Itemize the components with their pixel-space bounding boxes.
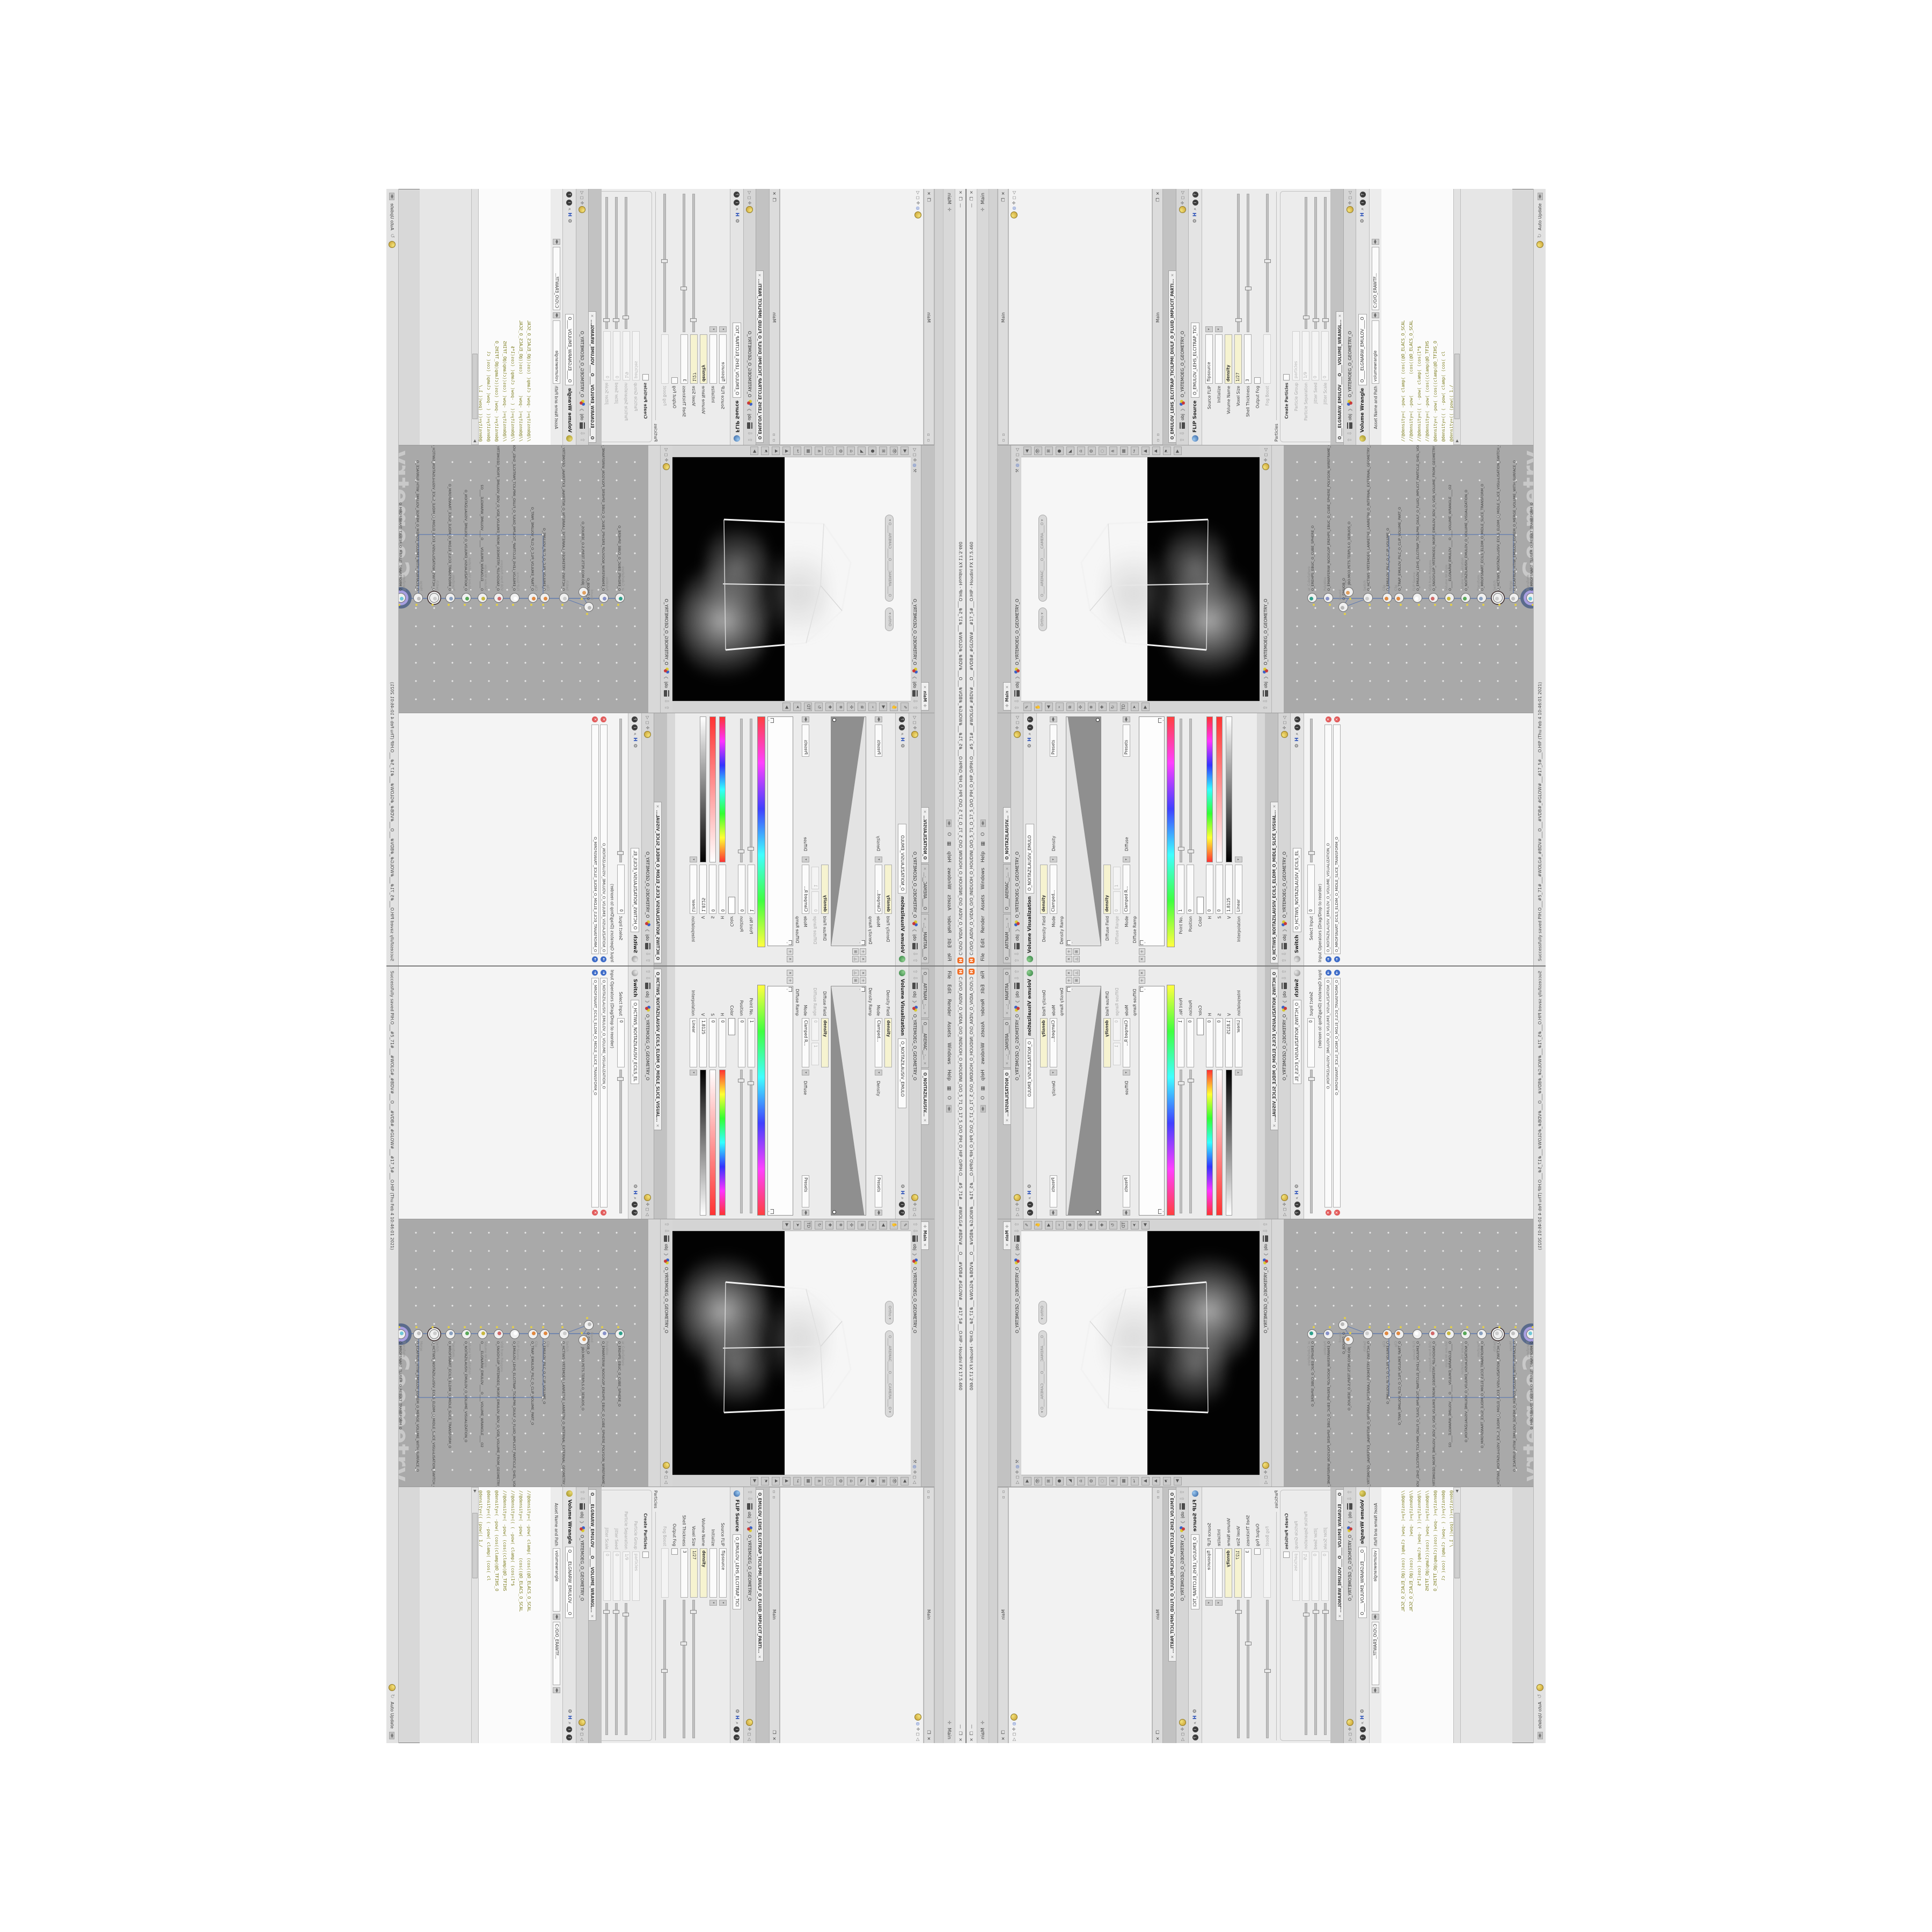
info-icon[interactable]: i	[1294, 724, 1300, 730]
pane-expand-icon[interactable]: ✛	[1180, 1728, 1185, 1731]
toolbar-icon[interactable]: ↻	[815, 1221, 823, 1230]
toolbar-icon[interactable]: ⚑	[1163, 447, 1171, 456]
anvil-icon[interactable]: ⚒	[913, 1459, 918, 1463]
pane-collapse-icon[interactable]: ◁	[916, 191, 920, 194]
minimize-button[interactable]: —	[958, 203, 963, 208]
context-label[interactable]: obj	[748, 1512, 752, 1518]
toolbar-icon[interactable]: ◌	[825, 447, 833, 456]
density-field-field[interactable]: density	[1040, 865, 1048, 914]
dock-icon[interactable]: ▫	[927, 1490, 932, 1493]
select-input-field[interactable]: 0	[617, 1018, 625, 1067]
position-slider[interactable]	[741, 719, 743, 862]
window-titlebar[interactable]: H C:/O/O_AIDIV_O_VIDIA_O/O_INIDUOH_O_HOU…	[967, 189, 977, 965]
tab-flip-source[interactable]: O_EMULOV_LEHS_ELCITRAP_TICILPMI_DIULF_O_…	[756, 1489, 764, 1662]
toolbar-icon[interactable]: ▶	[1141, 703, 1150, 712]
window-layout-icon[interactable]: ▦	[947, 841, 952, 846]
tab-camera[interactable]: O____AREMAC__:...✕	[1003, 1019, 1011, 1069]
toolbar-icon[interactable]: 👁	[890, 447, 898, 456]
toolbar-icon[interactable]: ⛰	[772, 1477, 780, 1485]
pin-icon[interactable]	[1014, 1194, 1021, 1201]
toolbar-icon[interactable]: ◀	[1045, 703, 1053, 712]
interpolation-menu-icon[interactable]: ▾	[690, 1070, 697, 1075]
pane-expand-icon[interactable]: ✛	[1012, 1728, 1016, 1731]
wrangle-node-name-field[interactable]: O____ELGNARW_EMULOV____O	[1358, 1547, 1367, 1618]
pane-collapse-icon[interactable]: ◁	[1180, 1738, 1185, 1741]
toolbar-icon[interactable]: ✚	[825, 1221, 833, 1230]
pin-icon[interactable]	[579, 207, 586, 214]
menu-assets[interactable]: Assets	[947, 895, 952, 910]
ramp-delete-point-button[interactable]: ✕	[1066, 956, 1072, 962]
ramp-delete-point-button[interactable]: ✕	[1139, 970, 1145, 976]
nav-down-icon[interactable]: ⇩	[1282, 952, 1287, 956]
tab-flip-source[interactable]: O_EMULOV_LEHS_ELCITRAP_TICILPMI_DIULF_O_…	[1168, 1489, 1176, 1662]
field-grip-icon[interactable]: ◀▶	[553, 1687, 560, 1693]
color-swatch[interactable]	[729, 897, 736, 914]
volume-name-field[interactable]: density	[700, 1548, 707, 1598]
toolbar-icon[interactable]: ▲	[782, 447, 791, 456]
tab-mantra[interactable]: O____ARTNAM__:...✕	[921, 914, 929, 963]
target-icon[interactable]: ◎	[913, 464, 918, 467]
jitter-seed-slider[interactable]	[616, 1603, 618, 1735]
diffuse-mode-menu-icon[interactable]: ▾	[1123, 857, 1130, 862]
search-icon[interactable]: ⌕	[899, 1197, 905, 1199]
sat-field[interactable]: 0	[709, 865, 716, 914]
houdini-help-icon[interactable]: H	[1192, 213, 1198, 217]
toolbar-icon[interactable]: ●	[868, 447, 876, 456]
node-polywire[interactable]	[1323, 593, 1333, 603]
nav-up-icon[interactable]: ⇧	[580, 1490, 586, 1494]
ramp-flip-button[interactable]: △	[1073, 956, 1080, 962]
sat-gradient-slider[interactable]	[1216, 1070, 1223, 1216]
node-cubesphere[interactable]	[1307, 593, 1317, 603]
diffuse-mode-presets-menu[interactable]: Presets	[1123, 1175, 1130, 1207]
diffuse-range-field-2[interactable]: 1	[811, 1043, 819, 1065]
gear-icon[interactable]: ⚙	[734, 1709, 740, 1713]
dock-icon[interactable]: ▫	[1001, 1496, 1006, 1498]
initialize-field[interactable]	[709, 1548, 717, 1598]
toolbar-icon[interactable]: ▶	[750, 447, 758, 456]
nav-down-icon[interactable]: ⇩	[912, 952, 918, 956]
ramp-add-point-button[interactable]: ＋	[860, 948, 866, 955]
menubar-grip[interactable]: ◀▶	[980, 1105, 986, 1113]
input-operator-field[interactable]: O_NOITAZILAUSIV_EMULOV_O_VOLUME_VISUALIZ…	[1324, 978, 1332, 1207]
viewport-canvas[interactable]: Ortho ▾ O____AREMAC_____O_____CAMERA____…	[1021, 457, 1260, 701]
main-window-titlebar[interactable]: ▫ ▫ Main ❐ ✕	[998, 1487, 1008, 1743]
houdini-help-icon[interactable]: H	[1294, 737, 1300, 742]
node-switch-geo[interactable]	[559, 593, 569, 603]
diffuse-range-field[interactable]: 0	[1113, 891, 1121, 914]
gear-icon[interactable]: ⚙	[899, 1184, 905, 1188]
pane-expand-icon[interactable]: ✛	[1015, 726, 1020, 730]
toolbar-icon[interactable]: ⚑	[761, 1477, 769, 1485]
auto-update-selector[interactable]: Auto Update	[390, 203, 394, 230]
pane-maximize-icon[interactable]: ◻	[1348, 196, 1352, 200]
nav-up-icon[interactable]: ⇧	[912, 969, 918, 974]
position-field[interactable]: 0	[1187, 1018, 1194, 1067]
toolbar-icon[interactable]: 👁	[890, 1477, 898, 1485]
toolbar-icon[interactable]: ↻	[1109, 703, 1117, 712]
node-bound[interactable]	[1338, 1320, 1348, 1330]
gear-icon[interactable]: ⚙	[632, 1184, 638, 1188]
jitter-seed-field[interactable]: 0	[613, 331, 620, 380]
menu-edit[interactable]: Edit	[980, 939, 986, 948]
tab-switch[interactable]: O_HCTIWS_NOITAZILAUSIV_ECILS_ELDIM_O_MID…	[1270, 969, 1278, 1130]
node-volume-wrangle[interactable]	[478, 593, 487, 603]
tab-volume-wrangle[interactable]: O____ELGNARW_EMULOV____O____VOLUME_WRANG…	[1336, 311, 1343, 443]
info-icon[interactable]: i	[1192, 1726, 1198, 1732]
input-operator-field[interactable]: O_NOITAZILAUSIV_EMULOV_O_VOLUME_VISUALIZ…	[1324, 724, 1332, 954]
toolbar-icon[interactable]: ✣	[847, 1221, 855, 1230]
diffuse-ramp-gradient[interactable]	[757, 716, 765, 947]
particle-separation-field[interactable]: 1/9	[623, 331, 630, 380]
pane-maximize-icon[interactable]: ◻	[748, 1732, 752, 1736]
nav-down-icon[interactable]: ⇩	[664, 1228, 670, 1233]
position-field[interactable]: 0	[738, 1018, 745, 1067]
main-window-titlebar[interactable]: ▫ ▫ Main ❐ ✕	[924, 1487, 934, 1743]
toolbar-icon[interactable]: ⧉	[858, 1221, 866, 1230]
pane-maximize-icon[interactable]: ◻	[664, 453, 669, 457]
tab-mantra[interactable]: O____ARTNAM__:...✕	[1003, 969, 1011, 1018]
nav-up-icon[interactable]: ⇧	[1282, 958, 1287, 963]
reorder-icon[interactable]: ➜	[592, 970, 598, 976]
menu-windows[interactable]: Windows	[947, 1043, 952, 1064]
tab-main-viewport[interactable]: ✛Main✕	[921, 1221, 929, 1250]
select-input-slider[interactable]	[1310, 1070, 1313, 1213]
context-label[interactable]: obj	[1282, 991, 1287, 998]
nav-down-icon[interactable]: ⇩	[1180, 431, 1185, 435]
pane-collapse-icon[interactable]: ◁	[1263, 1481, 1268, 1484]
toolbar-icon[interactable]: ⋔	[815, 447, 823, 456]
ramp-delete-point-button[interactable]: ✕	[860, 970, 866, 976]
pane-expand-icon[interactable]: ✛	[1282, 726, 1287, 730]
interpolation-field[interactable]: Linear	[1235, 865, 1242, 914]
ramp-add-point-button[interactable]: ＋	[787, 948, 793, 955]
nav-up-icon[interactable]: ⇧	[1347, 438, 1353, 442]
ramp-marker[interactable]	[1140, 987, 1145, 992]
gear-icon[interactable]: ⚙	[632, 744, 638, 748]
dock-icon[interactable]: ▫	[927, 433, 932, 436]
val-field[interactable]: 1.8125	[1225, 865, 1233, 914]
geometry-path[interactable]: O_YRTEMOEG_O_GEOMETRY_O	[1348, 331, 1352, 397]
diffuse-ramp-widget[interactable]: ✕ ＋	[766, 713, 794, 965]
menu-help[interactable]: Help	[947, 1070, 952, 1081]
search-icon[interactable]: ⌕	[1294, 1197, 1300, 1199]
tab-main-viewport[interactable]: ✛Main✕	[1003, 682, 1011, 711]
initialize-menu-icon[interactable]: ▾	[1215, 326, 1223, 332]
pane-collapse-icon[interactable]: ◁	[1180, 191, 1185, 194]
field-grip-icon[interactable]: ◀▶	[553, 1614, 560, 1620]
fog-boost-slider[interactable]	[664, 1600, 667, 1738]
menu-render[interactable]: Render	[947, 916, 952, 933]
compass-icon[interactable]: ✛	[980, 208, 986, 212]
tab-flip-source[interactable]: O_EMULOV_LEHS_ELCITRAP_TICILPMI_DIULF_O_…	[1168, 270, 1176, 443]
ortho-pill[interactable]: Ortho ▾	[885, 1301, 894, 1324]
geometry-path[interactable]: O_YRTEMOEG_O_GEOMETRY_O	[748, 1535, 752, 1601]
select-input-slider[interactable]	[1310, 719, 1313, 862]
node-file[interactable]	[579, 587, 588, 597]
toolbar-icon[interactable]: ◀	[1045, 1221, 1053, 1230]
select-input-slider[interactable]	[620, 1070, 623, 1213]
presets-grip-icon[interactable]: ◀▶	[875, 1210, 882, 1216]
pane-expand-icon[interactable]: ✛	[916, 1728, 920, 1731]
diffuse-range-field[interactable]: 0	[1113, 1018, 1121, 1041]
nav-down-icon[interactable]: ⇩	[1014, 699, 1020, 703]
delete-input-button[interactable]: ✕	[1334, 1210, 1340, 1216]
pane-expand-icon[interactable]: ✛	[748, 201, 752, 205]
ramp-marker[interactable]	[1067, 987, 1072, 992]
presets-grip-icon[interactable]: ◀▶	[802, 716, 809, 722]
nav-down-icon[interactable]: ⇩	[912, 1228, 918, 1233]
diffuse-range-field[interactable]: 0	[811, 1018, 819, 1041]
window-titlebar[interactable]: H C:/O/O_AIDIV_O_VIDIA_O/O_INIDUOH_O_HOU…	[955, 967, 965, 1743]
geometry-path[interactable]: O_YRTEMOEG_O_GEOMETRY_O	[1282, 852, 1287, 918]
status-sphere-icon[interactable]	[1536, 241, 1543, 248]
toolbar-icon[interactable]: ⚙	[836, 1477, 844, 1485]
jitter-seed-slider[interactable]	[616, 197, 618, 329]
toolbar-icon[interactable]: ↪	[793, 1477, 801, 1485]
tools-window-titlebar[interactable]: ▫ ▫ Main ❐ ✕	[1152, 1487, 1163, 1743]
context-label[interactable]: obj	[1348, 1512, 1352, 1518]
toolbar-icon[interactable]: ⊞	[1045, 1477, 1053, 1485]
pane-maximize-icon[interactable]: ◻	[580, 1732, 585, 1736]
pane-collapse-icon[interactable]: ◁	[913, 1481, 918, 1484]
info-icon[interactable]: i	[1027, 724, 1033, 730]
target-icon[interactable]: ◎	[913, 1465, 918, 1469]
context-label[interactable]: obj	[748, 414, 752, 420]
dock-icon[interactable]: ▫	[1001, 433, 1006, 436]
toolbar-icon[interactable]: ◀	[901, 1477, 909, 1485]
pane-maximize-icon[interactable]: ◻	[1180, 1732, 1185, 1736]
node-polywire[interactable]	[599, 593, 609, 603]
ramp-marker[interactable]	[860, 940, 865, 945]
window-layout-icon[interactable]: ▦	[980, 841, 986, 846]
pane-collapse-icon[interactable]: ◁	[913, 448, 918, 451]
status-sphere-icon[interactable]	[389, 241, 396, 248]
target-icon[interactable]: ◎	[916, 1722, 920, 1726]
context-label[interactable]: obj	[1015, 934, 1020, 941]
fog-boost-slider[interactable]	[664, 194, 667, 332]
node-merge[interactable]	[1509, 1329, 1519, 1339]
dock-icon[interactable]: ▫	[772, 1490, 777, 1493]
restore-button[interactable]: ❐	[969, 1731, 974, 1735]
window-titlebar[interactable]: H C:/O/O_AIDIV_O_VIDIA_O/O_INIDUOH_O_HOU…	[967, 967, 977, 1743]
node-clip-1[interactable]	[540, 593, 550, 603]
node-volume-wrangle[interactable]	[478, 1329, 487, 1339]
pin-icon[interactable]	[1281, 1194, 1288, 1201]
toolbar-icon[interactable]: ◌	[825, 1477, 833, 1485]
pane-collapse-icon[interactable]: ◁	[1012, 1738, 1016, 1741]
jitter-seed-slider[interactable]	[1314, 197, 1317, 329]
houdini-help-icon[interactable]: H	[899, 737, 905, 742]
code-hscrollbar[interactable]: ▶	[1453, 1487, 1461, 1743]
fog-boost-field[interactable]	[661, 1548, 669, 1598]
window-layout-icon[interactable]: ▦	[980, 1086, 986, 1091]
menubar-grip[interactable]: ◀▶	[947, 1105, 952, 1113]
asset-path-field[interactable]: C:/O/O_ERAWTF...	[553, 247, 560, 310]
pane-maximize-icon[interactable]: ◻	[646, 721, 650, 724]
info-icon[interactable]: i	[899, 724, 905, 730]
pane-maximize-icon[interactable]: ◻	[580, 196, 585, 200]
close-icon[interactable]: ✕	[772, 1737, 777, 1740]
toolbar-icon[interactable]: ➤	[1131, 1221, 1139, 1230]
density-ramp-widget[interactable]: ✕ ＋ △ ⊞	[1065, 967, 1102, 1219]
pane-expand-icon[interactable]: ✛	[646, 1203, 650, 1206]
toolbar-icon[interactable]: ●	[868, 1477, 876, 1485]
geometry-path[interactable]: O_YRTEMOEG_O_GEOMETRY_O	[1015, 1014, 1020, 1080]
dock-icon[interactable]: ▫	[927, 1496, 932, 1498]
ramp-add-point-button[interactable]: ＋	[1066, 948, 1072, 955]
pane-expand-icon[interactable]: ✛	[580, 201, 585, 205]
nav-down-icon[interactable]: ⇩	[912, 699, 918, 703]
pane-collapse-icon[interactable]: ◁	[580, 191, 585, 194]
ramp-marker[interactable]	[787, 940, 792, 945]
jitter-scale-slider[interactable]	[606, 1603, 609, 1735]
node-flip-source[interactable]	[510, 593, 519, 603]
diffuse-mode-field[interactable]: Clamped R...	[1123, 865, 1130, 914]
compass-icon[interactable]: ✛	[947, 1721, 952, 1725]
ramp-delete-point-button[interactable]: ✕	[1139, 956, 1145, 962]
help-icon[interactable]: ?	[899, 716, 905, 722]
toolbar-icon[interactable]: ✋	[890, 1221, 898, 1230]
density-mode-menu-icon[interactable]: ▾	[875, 1070, 882, 1075]
color-swatch[interactable]	[729, 1018, 736, 1035]
toolbar-icon[interactable]: ✣	[1077, 703, 1085, 712]
density-mode-field[interactable]: Clamped...	[875, 1018, 882, 1067]
jitter-scale-field[interactable]: 0	[1321, 1552, 1329, 1601]
pane-expand-icon[interactable]: ✛	[664, 458, 669, 462]
presets-grip-icon[interactable]: ◀▶	[1050, 1210, 1057, 1216]
pane-maximize-icon[interactable]: ◻	[916, 196, 920, 200]
density-ramp-widget[interactable]: ✕ ＋ △ ⊞	[830, 713, 867, 965]
toolbar-icon[interactable]: ▦	[1120, 447, 1128, 456]
menu-help[interactable]: Help	[980, 1070, 986, 1081]
nav-up-icon[interactable]: ⇧	[645, 969, 651, 974]
toolbar-icon[interactable]: ⌂	[847, 1477, 855, 1485]
help-icon[interactable]: ?	[1360, 192, 1366, 197]
hue-field[interactable]: 0	[1206, 1018, 1213, 1067]
jitter-scale-slider[interactable]	[1324, 1603, 1327, 1735]
dock-icon[interactable]: ▫	[772, 1496, 777, 1498]
toolbar-icon[interactable]: ◀	[901, 447, 909, 456]
context-label[interactable]: obj	[664, 1244, 669, 1250]
pane-collapse-icon[interactable]: ◁	[1012, 191, 1016, 194]
ramp-marker[interactable]	[1158, 1209, 1163, 1214]
diffuse-range-field[interactable]: 0	[811, 891, 819, 914]
reorder-icon[interactable]: ➜	[601, 956, 607, 962]
density-mode-presets-menu[interactable]: Presets	[1050, 1175, 1057, 1207]
diffuse-mode-menu-icon[interactable]: ▾	[802, 1070, 809, 1075]
info-icon[interactable]: i	[1294, 1202, 1300, 1207]
help-icon[interactable]: ?	[1192, 192, 1198, 197]
nav-down-icon[interactable]: ⇩	[1347, 431, 1353, 435]
node-bound[interactable]	[584, 1320, 594, 1330]
toolbar-icon[interactable]: ⌂	[1077, 447, 1085, 456]
delete-input-button[interactable]: ✕	[1326, 716, 1331, 722]
dock-icon[interactable]: ▫	[1001, 1490, 1006, 1493]
pane-collapse-icon[interactable]: ◁	[916, 1738, 920, 1741]
color-swatch[interactable]	[1197, 897, 1204, 914]
dock-icon[interactable]: ▫	[1155, 439, 1160, 442]
voxel-size-field[interactable]: 1/27	[690, 334, 698, 384]
node-transform-slice[interactable]	[445, 593, 455, 603]
geometry-path[interactable]: O_YRTEMOEG_O_GEOMETRY_O	[1180, 331, 1185, 397]
voxel-size-field[interactable]: 1/27	[1234, 1548, 1242, 1598]
toolbar-icon[interactable]: ⊞	[879, 447, 887, 456]
restore-icon[interactable]: ❐	[1001, 198, 1006, 202]
ramp-delete-point-button[interactable]: ✕	[1066, 970, 1072, 976]
toolbar-icon[interactable]: ✚	[1099, 703, 1107, 712]
tools-window-titlebar[interactable]: ▫ ▫ Main ❐ ✕	[769, 1487, 780, 1743]
close-icon[interactable]: ✕	[927, 1737, 932, 1740]
node-file[interactable]	[1344, 587, 1353, 597]
pane-expand-icon[interactable]: ✛	[664, 1470, 669, 1474]
anvil-icon[interactable]: ⚒	[1015, 1459, 1020, 1463]
sat-gradient-slider[interactable]	[1216, 716, 1223, 862]
toolbar-icon[interactable]: ▶	[782, 703, 791, 712]
tab-visualization[interactable]: O_NOITAZILAUSIV...✕	[921, 1069, 929, 1125]
ramp-expand-button[interactable]: ⊞	[852, 948, 859, 955]
select-input-field[interactable]: 0	[1307, 1018, 1315, 1067]
gear-icon[interactable]: ⚙	[567, 1709, 572, 1713]
volume-name-field[interactable]: density	[1225, 1548, 1232, 1598]
pane-expand-icon[interactable]: ✛	[913, 1203, 918, 1206]
pane-expand-icon[interactable]: ✛	[913, 458, 918, 462]
node-volume-visualization[interactable]	[1461, 1329, 1470, 1339]
toolbar-icon[interactable]: ▶	[1174, 447, 1182, 456]
ramp-flip-button[interactable]: △	[852, 970, 859, 976]
density-field-field[interactable]: density	[884, 865, 892, 914]
toolbar-icon[interactable]: ⋔	[1109, 1477, 1117, 1485]
tab-mantra[interactable]: O____ARTNAM__:...✕	[1003, 914, 1011, 963]
node-file[interactable]	[1344, 1335, 1353, 1345]
nav-down-icon[interactable]: ⇩	[1263, 1228, 1269, 1233]
input-operator-field[interactable]: O_MROFSNART_ECILS_ELDIM_O_MIDLE_SLICE_TR…	[591, 978, 599, 1207]
info-icon[interactable]: i	[734, 200, 740, 206]
close-icon[interactable]: ✕	[1155, 192, 1160, 195]
diffuse-mode-field[interactable]: Clamped R...	[1123, 1018, 1130, 1067]
val-field[interactable]: 1.8125	[699, 1018, 707, 1067]
refresh-icon[interactable]: ↻	[389, 233, 395, 238]
pane-collapse-icon[interactable]: ◁	[646, 1213, 650, 1216]
sat-gradient-slider[interactable]	[709, 1070, 716, 1216]
select-input-field[interactable]: 0	[617, 865, 625, 914]
toolbar-icon[interactable]: ⊞	[879, 1477, 887, 1485]
toolbar-icon[interactable]: ▶	[1174, 1477, 1182, 1485]
pin-icon[interactable]	[1011, 211, 1018, 218]
tab-volume-wrangle[interactable]: O____ELGNARW_EMULOV____O____VOLUME_WRANG…	[589, 311, 596, 443]
voxel-size-slider[interactable]	[1237, 1600, 1240, 1738]
wrangle-node-name-field[interactable]: O____ELGNARW_EMULOV____O	[565, 314, 574, 385]
tab-switch[interactable]: O_HCTIWS_NOITAZILAUSIV_ECILS_ELDIM_O_MID…	[1270, 802, 1278, 963]
pane-maximize-icon[interactable]: ◻	[1348, 1732, 1352, 1736]
info-icon[interactable]: i	[1027, 1202, 1033, 1207]
diffuse-range-field-2[interactable]: 1	[1113, 1043, 1121, 1065]
toolbar-icon[interactable]: ◣	[858, 1477, 866, 1485]
delete-input-button[interactable]: ✕	[592, 1210, 598, 1216]
sat-gradient-slider[interactable]	[709, 716, 716, 862]
toolbar-icon[interactable]: TD	[1120, 703, 1128, 712]
gear-icon[interactable]: ⚙	[1192, 1709, 1198, 1713]
initialize-menu-icon[interactable]: ▾	[1215, 1600, 1223, 1606]
tab-visualization[interactable]: O_NOITAZILAUSIV...✕	[1003, 807, 1011, 863]
toolbar-icon[interactable]: ▦	[804, 1477, 812, 1485]
menu-assets[interactable]: Assets	[980, 1022, 986, 1037]
point-no-field[interactable]: 1	[1177, 1018, 1184, 1067]
density-ramp-widget[interactable]: ✕ ＋ △ ⊞	[1065, 713, 1102, 965]
toolbar-icon[interactable]: ✣	[847, 703, 855, 712]
info-icon[interactable]: i	[734, 1726, 740, 1732]
refresh-icon[interactable]: ↻	[1537, 1694, 1543, 1699]
